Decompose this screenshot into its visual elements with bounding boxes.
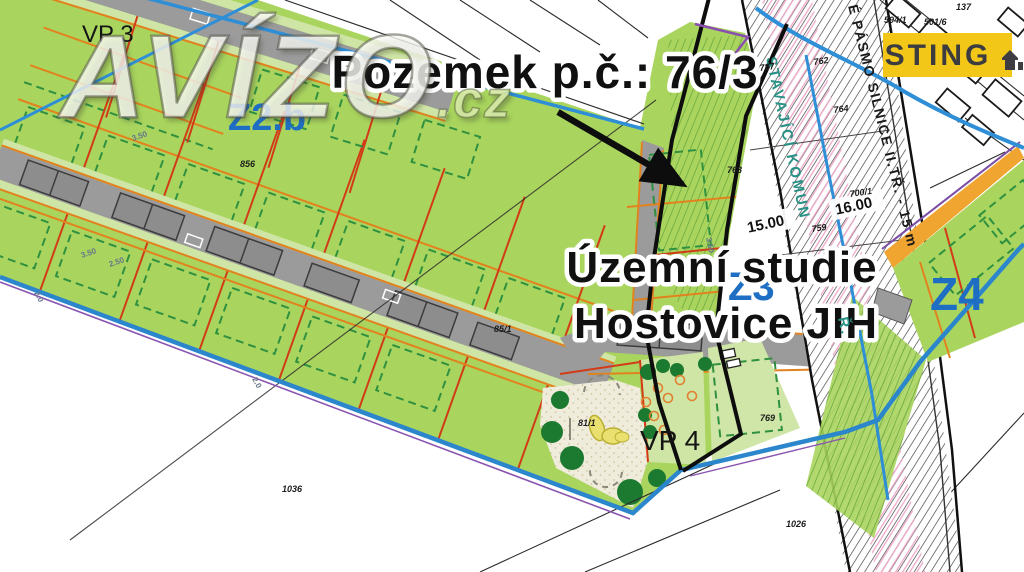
- sting-badge: STING: [883, 33, 1023, 77]
- parcel-number-1026: 1026: [786, 519, 807, 529]
- parcel-number-851: 85/1: [494, 324, 512, 334]
- parcel-number-5941: 594/1: [884, 15, 907, 25]
- zoning-map-screenshot: STING Z3 Z2.b Z4 VP 3 VP 4 Pozemek p.č.:…: [0, 0, 1024, 572]
- parcel-number-764: 764: [833, 103, 849, 115]
- zone-label-z4: Z4: [930, 268, 984, 320]
- dim-20a: 2.0: [250, 376, 263, 391]
- zoning-map: STING Z3 Z2.b Z4 VP 3 VP 4 Pozemek p.č.:…: [0, 0, 1024, 572]
- zone-label-vp3: VP 3: [82, 21, 134, 48]
- parcel-number-856: 856: [240, 159, 256, 169]
- parcel-callout-text: Pozemek p.č.: 76/3: [331, 46, 758, 98]
- sting-label: STING: [885, 39, 992, 72]
- study-title-line2: Hostovice JIH: [574, 299, 878, 348]
- parcel-number-811: 81/1: [578, 418, 596, 428]
- parcel-number-762: 762: [813, 55, 829, 67]
- zone-label-z2b: Z2.b: [228, 97, 306, 139]
- zone-label-vp4: VP 4: [640, 425, 700, 456]
- study-title-line1: Územní studie: [566, 242, 877, 292]
- parcel-number-769: 769: [760, 413, 775, 423]
- parcel-number-763: 763: [727, 165, 742, 175]
- parcel-number-1036: 1036: [282, 484, 303, 494]
- parcel-number-137: 137: [956, 2, 972, 12]
- parcel-number-759: 759: [811, 222, 827, 234]
- parcel-number-5016: 501/6: [924, 17, 948, 27]
